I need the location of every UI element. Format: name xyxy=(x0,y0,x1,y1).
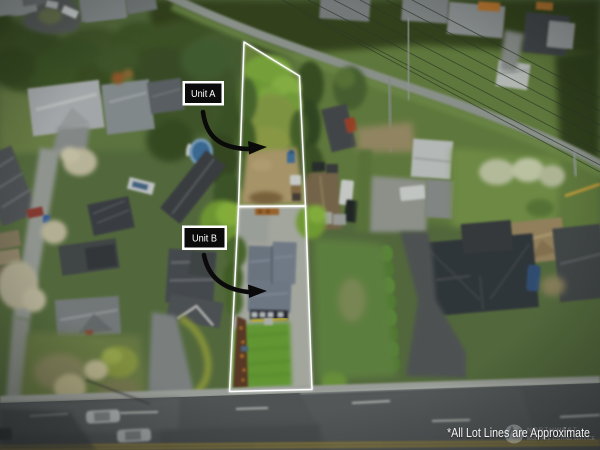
svg-text:Unit A: Unit A xyxy=(191,89,216,100)
svg-text:*All Lot Lines are Approximate: *All Lot Lines are Approximate xyxy=(447,425,590,440)
svg-text:Unit B: Unit B xyxy=(192,234,217,245)
